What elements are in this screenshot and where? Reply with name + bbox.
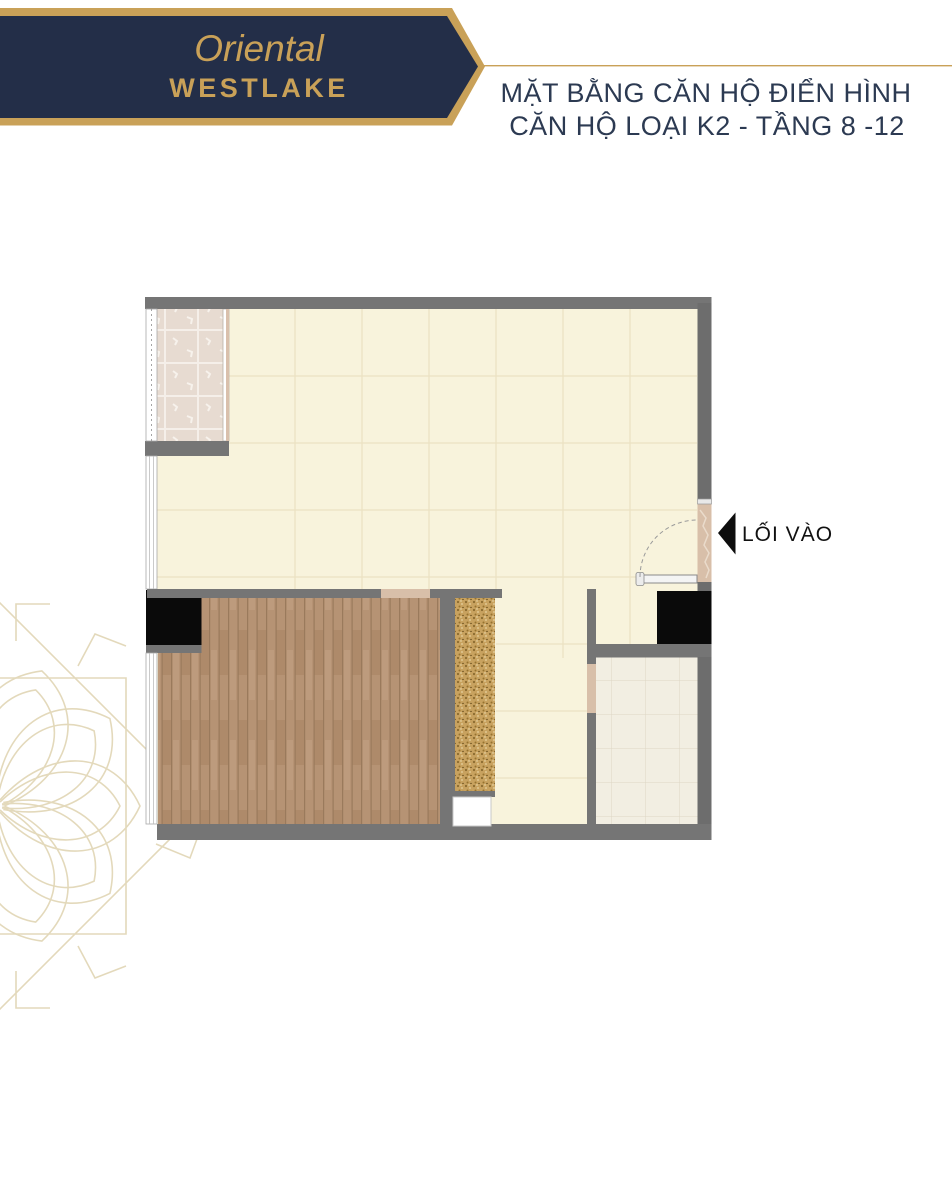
svg-text:Oriental: Oriental [194,28,325,69]
svg-text:LỐI VÀO: LỐI VÀO [742,522,833,546]
svg-text:WESTLAKE: WESTLAKE [169,73,349,103]
svg-text:CĂN HỘ LOẠI K2 - TẦNG 8 -12: CĂN HỘ LOẠI K2 - TẦNG 8 -12 [509,110,905,141]
svg-text:MẶT BẰNG CĂN HỘ ĐIỂN HÌNH: MẶT BẰNG CĂN HỘ ĐIỂN HÌNH [500,77,911,108]
